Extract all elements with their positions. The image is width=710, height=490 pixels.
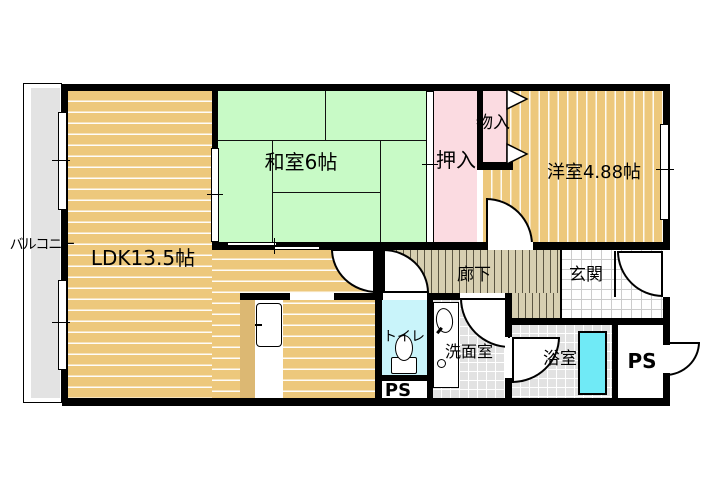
- kitchen-opening: [290, 293, 334, 300]
- pipe-space-doorway: [663, 345, 670, 373]
- wall-top: [62, 84, 670, 91]
- window-tick: [656, 169, 674, 170]
- ldk-floor: [68, 91, 212, 398]
- pipe-space-left-label: PS: [379, 382, 417, 401]
- entrance-doorway: [663, 250, 670, 297]
- wall-bathroom-right: [612, 318, 618, 398]
- wall-washroom-right-lower: [505, 378, 512, 398]
- balcony-window-lower: [58, 280, 67, 370]
- wall-bottom: [62, 398, 670, 406]
- kitchen-counter: [240, 295, 255, 398]
- storage-label: 物入: [470, 115, 516, 133]
- kitchen-sink-handle: [255, 324, 262, 326]
- entrance-door-frame: [614, 251, 616, 297]
- western-room-window: [660, 124, 669, 220]
- wall-kitchen-right: [334, 293, 373, 300]
- washroom-label: 洗面室: [434, 344, 504, 361]
- hallway-floor-lower: [512, 293, 560, 318]
- sliding-door-panel-b: [273, 246, 320, 250]
- wall-kitchen-left: [240, 293, 290, 300]
- sliding-door-tick: [274, 238, 275, 254]
- wall-toilet-right: [427, 293, 433, 398]
- wall-washroom-right-upper: [505, 293, 512, 337]
- balcony-window-upper: [58, 112, 67, 210]
- floor-plan: バルコニー LDK13.5帖 和室6帖 押入 物入 洋室4.88帖 廊下 玄関 …: [0, 0, 710, 490]
- toilet-label: トイレ: [380, 330, 428, 345]
- wall-japanese-room-left: [212, 91, 218, 148]
- entrance-step-line: [560, 250, 562, 318]
- wall-washroom-top: [427, 293, 460, 300]
- japanese-room-label: 和室6帖: [240, 152, 362, 173]
- sliding-door-panel-a: [227, 242, 277, 246]
- window-tick: [52, 322, 70, 323]
- pipe-space-right-label: PS: [622, 351, 662, 372]
- bathroom-label: 浴室: [536, 351, 584, 369]
- tatami-line: [380, 140, 381, 242]
- wall-pillar-hall: [373, 242, 383, 300]
- closet-label: 押入: [432, 150, 480, 171]
- tatami-line: [272, 192, 380, 193]
- western-room-label: 洋室4.88帖: [538, 164, 650, 183]
- bathroom-doorway: [505, 338, 512, 378]
- fusuma-tick: [207, 194, 223, 195]
- japanese-room-fusuma-left: [211, 148, 219, 242]
- tatami-line: [325, 91, 326, 140]
- tatami-line: [218, 140, 427, 141]
- western-room-doorway: [488, 242, 533, 250]
- wall-bathroom-top: [512, 318, 663, 325]
- window-tick: [52, 160, 70, 161]
- ldk-label: LDK13.5帖: [72, 248, 214, 269]
- entrance-label: 玄関: [563, 267, 609, 285]
- pipe-space-door: [665, 342, 700, 376]
- hallway-label: 廊下: [450, 267, 498, 285]
